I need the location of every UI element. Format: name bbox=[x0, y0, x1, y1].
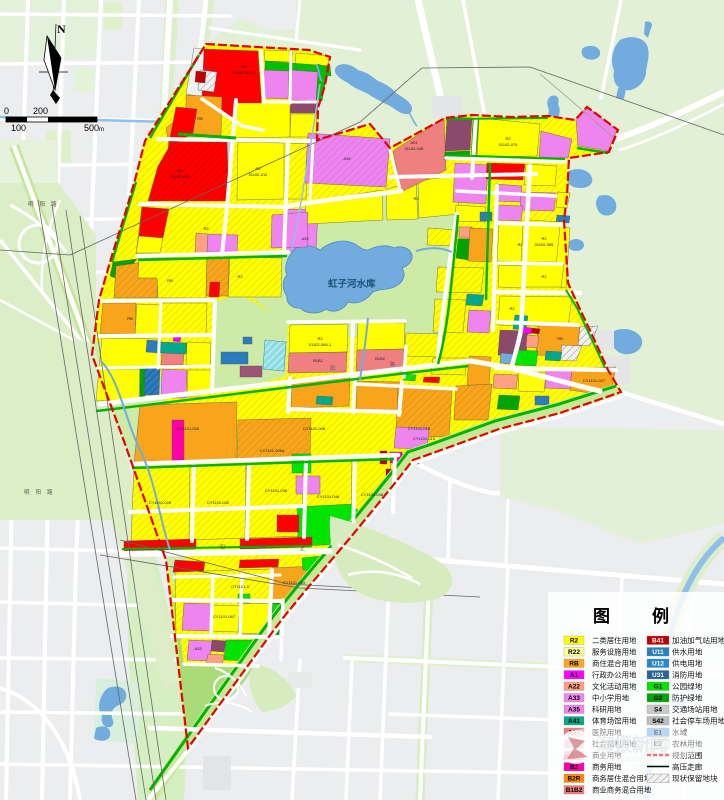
svg-text:CY1101-027: CY1101-027 bbox=[583, 378, 606, 383]
svg-text:S42: S42 bbox=[652, 718, 664, 725]
svg-text:01102-048: 01102-048 bbox=[405, 146, 425, 151]
svg-text:中小学用地: 中小学用地 bbox=[592, 694, 630, 703]
svg-text:B1B2: B1B2 bbox=[313, 358, 324, 363]
svg-text:公园绿地: 公园绿地 bbox=[672, 681, 703, 691]
svg-text:G1: G1 bbox=[654, 684, 663, 691]
svg-text:RB: RB bbox=[167, 278, 173, 283]
svg-text:A22: A22 bbox=[568, 684, 580, 691]
svg-text:R2: R2 bbox=[203, 226, 209, 231]
svg-text:U31: U31 bbox=[652, 672, 664, 679]
svg-text:CY1101-015: CY1101-015 bbox=[413, 436, 436, 441]
svg-text:B1B2: B1B2 bbox=[566, 787, 583, 794]
svg-text:服务设施用地: 服务设施用地 bbox=[592, 648, 637, 657]
svg-text:虹子河水库: 虹子河水库 bbox=[328, 278, 376, 290]
svg-text:CY1101-067: CY1101-067 bbox=[213, 614, 236, 619]
svg-text:A51: A51 bbox=[410, 140, 418, 145]
svg-text:社会停车场用地: 社会停车场用地 bbox=[672, 716, 724, 726]
svg-text:文化活动用地: 文化活动用地 bbox=[592, 682, 637, 691]
svg-text:A33: A33 bbox=[568, 695, 580, 702]
svg-text:R2: R2 bbox=[509, 306, 515, 311]
svg-text:加油加气站用地: 加油加气站用地 bbox=[672, 635, 724, 645]
svg-text:U11: U11 bbox=[652, 649, 664, 656]
svg-text:路: 路 bbox=[390, 361, 395, 368]
svg-text:正: 正 bbox=[160, 546, 165, 552]
svg-text:明阳路: 明阳路 bbox=[24, 488, 59, 496]
svg-text:01102-012: 01102-012 bbox=[249, 172, 269, 177]
svg-text:A1: A1 bbox=[570, 672, 579, 679]
svg-text:01102-005: 01102-005 bbox=[171, 174, 191, 179]
svg-text:明阳路: 明阳路 bbox=[28, 200, 63, 208]
svg-text:RB: RB bbox=[569, 661, 579, 668]
svg-text:R2: R2 bbox=[317, 336, 323, 341]
svg-text:haibaonews.com: haibaonews.com bbox=[602, 753, 666, 763]
svg-text:R22: R22 bbox=[568, 649, 580, 656]
svg-text:G2: G2 bbox=[654, 695, 663, 702]
svg-text:A41: A41 bbox=[568, 718, 580, 725]
svg-text:海报新闻: 海报新闻 bbox=[596, 734, 668, 755]
svg-text:R2: R2 bbox=[570, 638, 579, 645]
svg-text:科研用地: 科研用地 bbox=[592, 705, 622, 714]
svg-text:R2: R2 bbox=[541, 236, 547, 241]
svg-text:B41: B41 bbox=[652, 638, 664, 645]
svg-text:B1B2: B1B2 bbox=[375, 356, 386, 361]
svg-text:商务用地: 商务用地 bbox=[592, 763, 622, 772]
svg-text:防护绿地: 防护绿地 bbox=[672, 693, 703, 703]
svg-text:CY1101-0: CY1101-0 bbox=[231, 584, 249, 589]
svg-text:CY1101-046: CY1101-046 bbox=[317, 494, 340, 499]
svg-text:A33: A33 bbox=[301, 236, 309, 241]
svg-text:CY1101-005: CY1101-005 bbox=[177, 426, 200, 431]
svg-text:RB: RB bbox=[127, 316, 133, 321]
svg-text:交通场站用地: 交通场站用地 bbox=[672, 704, 718, 714]
svg-text:正: 正 bbox=[300, 546, 305, 552]
svg-text:01102-085: 01102-085 bbox=[535, 242, 555, 247]
svg-text:200: 200 bbox=[33, 106, 48, 116]
svg-text:供水用地: 供水用地 bbox=[672, 647, 703, 657]
svg-text:CY1101-064: CY1101-064 bbox=[283, 580, 306, 585]
svg-text:R2: R2 bbox=[505, 136, 511, 141]
svg-text:A35: A35 bbox=[568, 707, 580, 714]
svg-text:CY1101-028: CY1101-028 bbox=[149, 500, 172, 505]
svg-text:供电用地: 供电用地 bbox=[672, 658, 703, 668]
svg-text:U12: U12 bbox=[652, 661, 664, 668]
svg-text:阳: 阳 bbox=[330, 365, 335, 372]
svg-text:商业商务混合用地: 商业商务混合用地 bbox=[592, 786, 652, 795]
svg-text:CY1101-015: CY1101-015 bbox=[408, 426, 431, 431]
svg-text:商住混合用地: 商住混合用地 bbox=[592, 659, 637, 668]
svg-text:R2: R2 bbox=[541, 274, 547, 279]
svg-text:B1: B1 bbox=[242, 64, 248, 69]
svg-text:CY1101-032: CY1101-032 bbox=[207, 500, 230, 505]
svg-text:R2: R2 bbox=[237, 274, 243, 279]
svg-text:图: 图 bbox=[593, 607, 610, 626]
svg-text:路: 路 bbox=[260, 543, 265, 550]
svg-text:商务居住混合用地: 商务居住混合用地 bbox=[592, 774, 652, 783]
svg-text:A33: A33 bbox=[194, 646, 202, 651]
svg-text:现状保留地块: 现状保留地块 bbox=[672, 773, 718, 783]
svg-text:CY1101-036: CY1101-036 bbox=[265, 488, 288, 493]
svg-text:S4: S4 bbox=[654, 707, 662, 714]
svg-text:行政办公用地: 行政办公用地 bbox=[592, 671, 637, 680]
svg-text:N: N bbox=[57, 22, 66, 36]
svg-text:01102-075: 01102-075 bbox=[499, 142, 519, 147]
svg-text:二类居住用地: 二类居住用地 bbox=[592, 636, 637, 645]
svg-text:RB: RB bbox=[197, 116, 203, 121]
svg-text:R2: R2 bbox=[255, 166, 261, 171]
svg-text:0: 0 bbox=[4, 106, 9, 116]
svg-text:阳: 阳 bbox=[220, 544, 225, 551]
svg-text:CY1101-009a: CY1101-009a bbox=[260, 448, 285, 453]
svg-text:B1: B1 bbox=[178, 168, 184, 173]
svg-text:高压走廊: 高压走廊 bbox=[672, 762, 703, 772]
svg-text:消防用地: 消防用地 bbox=[672, 670, 703, 680]
svg-text:01102-068-1: 01102-068-1 bbox=[309, 342, 332, 347]
svg-text:100: 100 bbox=[11, 123, 26, 133]
svg-text:RB: RB bbox=[557, 336, 563, 341]
svg-text:R2: R2 bbox=[517, 242, 523, 247]
svg-text:A35: A35 bbox=[343, 156, 351, 161]
svg-text:01102-002-1: 01102-002-1 bbox=[233, 70, 256, 75]
svg-text:CY1101-008: CY1101-008 bbox=[303, 426, 326, 431]
svg-text:例: 例 bbox=[652, 606, 669, 626]
svg-text:B2R: B2R bbox=[567, 776, 580, 783]
svg-text:B2: B2 bbox=[570, 764, 579, 771]
svg-text:R2: R2 bbox=[413, 196, 419, 201]
svg-text:CY1101-048: CY1101-048 bbox=[361, 492, 384, 497]
